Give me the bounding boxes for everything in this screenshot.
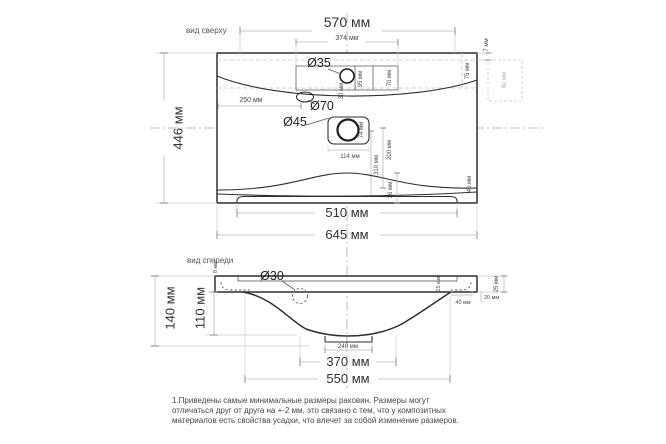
dim-20: 20 мм [484,295,499,301]
dim-140: 140 мм [163,286,178,329]
dim-15: 15 мм [436,276,442,291]
dim-40-front: 40 мм [455,300,470,306]
dim-7-ticks [485,53,491,60]
dim-25: 25 мм [494,276,500,293]
front-view-title: вид спереди [187,256,233,265]
dim-370: 370 мм [326,354,369,369]
dim-200: 200 мм [387,140,393,160]
dim-550: 550 мм [326,371,369,386]
note-line-2: отличаться друг от друга на +-2 мм, это … [172,406,446,415]
dim-250: 250 мм [239,97,262,104]
top-view-title: вид сверху [186,26,227,35]
footnote: 1.Приведены самые минимальные размеры ра… [172,396,459,425]
dim-25-ext [477,276,508,292]
sink-dimension-drawing: вид сверху 80 мм Ø35 30 мм 95 мм 70 мм Ø… [0,0,666,444]
front-view: вид спереди Ø30 140 мм 110 мм 8 мм 15 мм [150,256,508,386]
dim-374: 374 мм [335,35,358,42]
dim-550-ext [245,296,450,383]
top-view: вид сверху 80 мм Ø35 30 мм 95 мм 70 мм Ø… [150,14,545,242]
dim-240: 240 мм [338,344,358,350]
dim-114: 114 мм [340,154,359,160]
note-line-1: 1.Приведены самые минимальные размеры ра… [172,396,430,405]
dim-30: 30 мм [339,83,345,100]
dim-7: 7 мм [484,38,490,51]
dim-570: 570 мм [324,14,371,30]
dim-70: 70 мм [387,70,393,87]
dim-40-top: 40 мм [467,176,473,193]
dim-36: 36 мм [388,182,394,199]
dim-74: 74 мм [359,122,365,139]
hole-label-faucet: Ø35 [307,56,331,70]
dim-446: 446 мм [171,106,186,149]
drain-ledge [325,336,372,342]
drain-hole [338,120,359,141]
dim-8: 8 мм [213,261,219,273]
note-line-3: материалов есть свойства усадки, что вле… [172,416,459,425]
hole-label-drain: Ø45 [283,115,307,129]
faucet-hole [340,69,354,83]
hole-label-siphon: Ø30 [260,269,284,283]
dim-645: 645 мм [325,227,368,242]
dim-80: 80 мм [502,72,508,89]
dim-310: 310 мм [374,155,380,175]
dim-75: 75 мм [465,63,471,80]
dim-110-ext [206,292,296,335]
hole-label-overflow: Ø70 [310,99,334,113]
dim-95: 95 мм [358,71,364,88]
dim-110: 110 мм [193,287,208,329]
dim-510: 510 мм [325,205,368,220]
dim-7-ext [477,53,492,60]
